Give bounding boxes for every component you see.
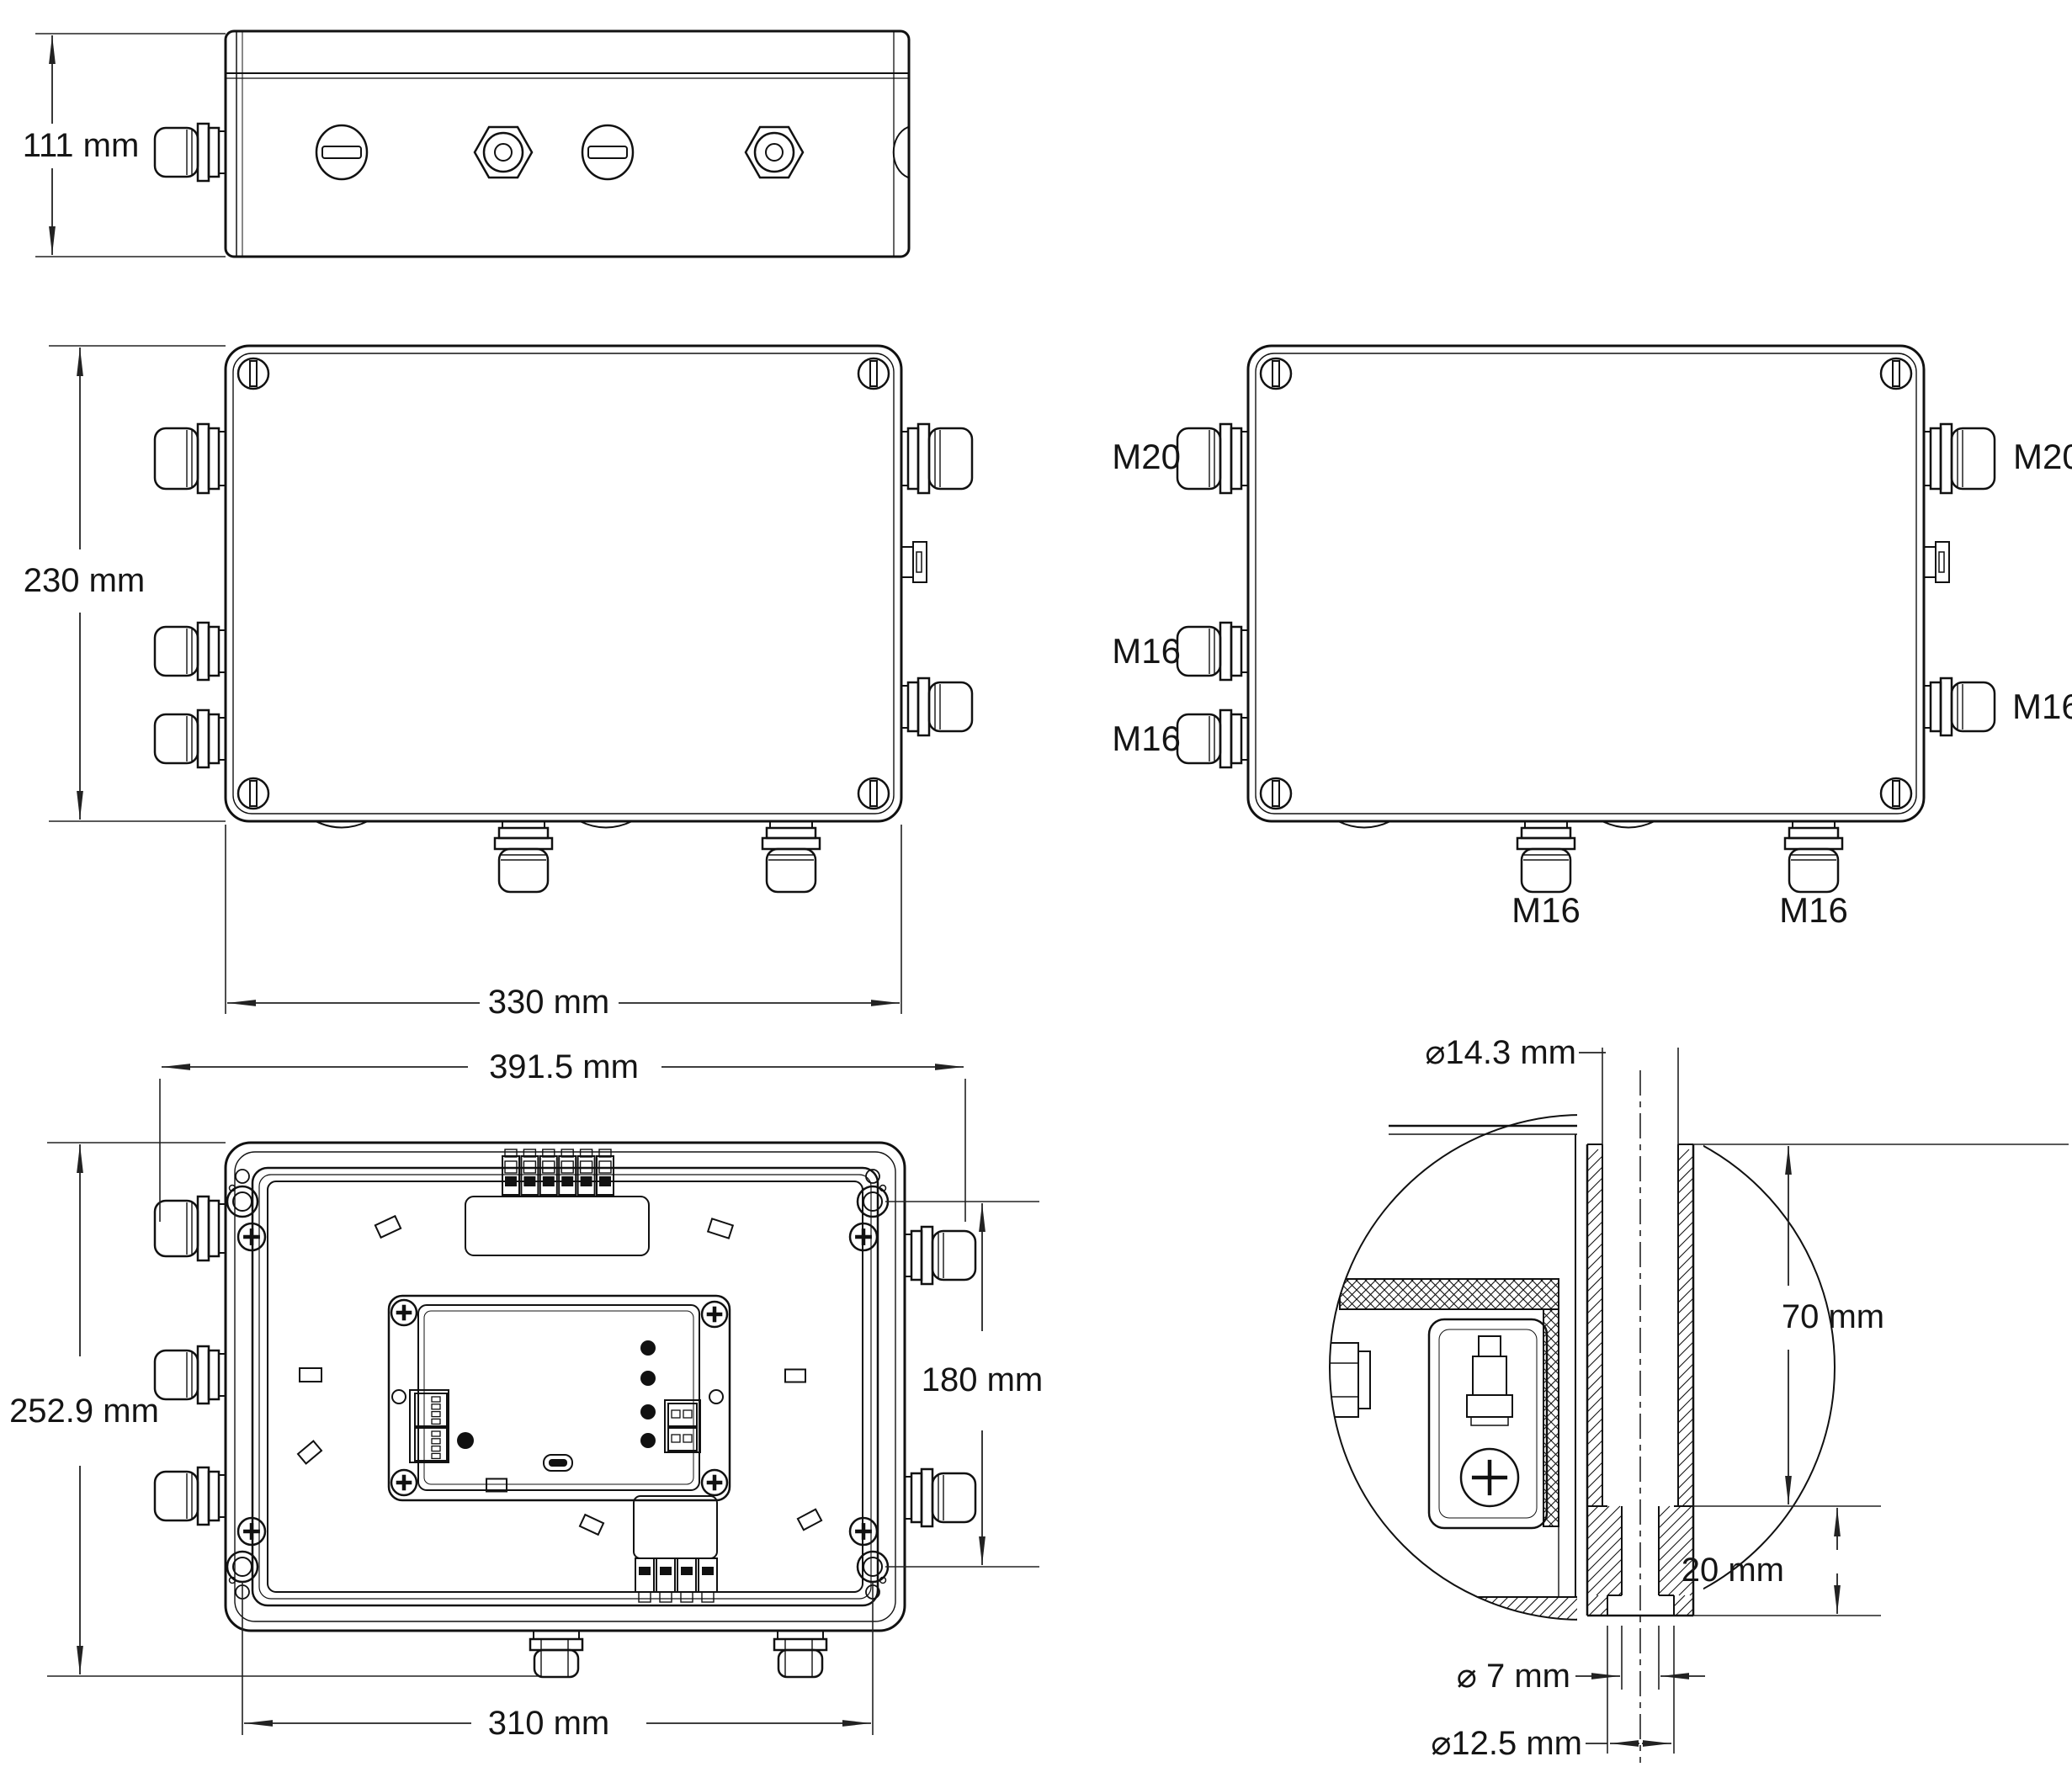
cable-gland-icon [155,424,226,493]
clip-mark [580,1515,603,1535]
oval-screw-cover-icon [316,125,367,179]
label-gland-bottom-left: M16 [1511,890,1581,930]
terminal-block [521,1149,538,1195]
vent-plug-icon [901,542,927,582]
cable-gland-icon [762,821,820,892]
hex-gland-icon [746,127,803,178]
dim-front-width: 330 mm [488,984,610,1021]
terminal-block [677,1558,696,1602]
clip-mark [375,1216,401,1237]
cable-gland-icon [155,1346,226,1404]
oval-screw-cover-icon [582,125,633,179]
terminal-block [635,1558,654,1602]
cable-gland-icon [901,424,972,493]
front-view-gland-labels: M20 M16 M16 M20 M16 M16 M16 [1112,346,2072,930]
dim-mount-width: 310 mm [488,1705,610,1742]
terminal-block [656,1558,675,1602]
dim-boss-depth: 20 mm [1682,1552,1784,1589]
phillips-screw-icon [1461,1449,1518,1506]
dim-sleeve-dia: ⌀14.3 mm [1425,1034,1576,1071]
phillips-screw-icon [391,1470,417,1495]
cable-gland-icon [495,821,552,892]
side-view: 111 mm [23,31,909,257]
label-gland-left-mid: M16 [1112,631,1181,671]
slotted-screw-icon [238,778,268,809]
vent-plug-icon [1924,542,1949,582]
clip-mark [798,1510,821,1531]
dim-open-height: 252.9 mm [9,1393,159,1430]
clip-mark [708,1218,733,1238]
dim-counterbore-dia: ⌀12.5 mm [1431,1725,1582,1762]
phillips-screw-icon [702,1470,727,1495]
terminal-block [597,1149,614,1195]
dim-screw-hole-dia: ⌀ 7 mm [1457,1658,1570,1695]
terminal-block [502,1149,519,1195]
cable-gland-icon [155,1197,226,1260]
clip-mark [300,1368,321,1382]
cable-gland-icon [905,1227,975,1284]
terminal-block [699,1558,717,1602]
dim-front-height: 230 mm [24,562,146,599]
cable-gland-icon [530,1631,582,1677]
sectioned-gland [1330,1343,1370,1417]
slotted-screw-icon [1261,358,1291,389]
dim-side-height: 111 mm [23,127,140,164]
slotted-screw-icon [858,358,889,389]
slotted-screw-icon [1261,778,1291,809]
hex-gland-icon [475,127,532,178]
terminal-block [540,1149,557,1195]
phillips-screw-icon [702,1302,727,1327]
controller-module [389,1296,730,1500]
terminal-block [559,1149,576,1195]
slotted-screw-icon [858,778,889,809]
cable-gland-icon [1177,424,1248,493]
dim-mount-height: 180 mm [922,1361,1044,1398]
cable-gland-icon [1924,678,1995,735]
cable-gland-icon [1177,710,1248,767]
seal-band [1340,1279,1559,1309]
dim-sleeve-depth: 70 mm [1782,1298,1884,1335]
floor-section [1367,1597,1587,1627]
cable-gland-icon [155,124,226,181]
label-gland-right-top: M20 [2013,437,2072,476]
section-detail-view: ⌀14.3 mm 70 mm 20 mm ⌀ 7 mm ⌀12.5 mm [1330,1034,2069,1763]
cable-gland-icon [774,1631,826,1677]
label-gland-right-bottom: M16 [2012,687,2072,726]
phillips-screw-icon [391,1300,417,1325]
cable-gland-icon [1517,821,1575,892]
technical-drawing-page: 111 mm 230 mm 330 mm M20 M16 M16 M20 M16… [0,0,2072,1767]
status-led-icons [640,1340,656,1448]
cable-gland-icon [1785,821,1842,892]
slotted-screw-icon [1881,358,1911,389]
front-view-dimensioned: 230 mm 330 mm [24,346,972,1021]
cable-gland-icon [905,1469,975,1526]
clip-mark [785,1370,805,1382]
label-gland-left-bottom: M16 [1112,719,1181,758]
cable-gland-icon [155,1467,226,1525]
cable-gland-icon [1924,424,1995,493]
terminal-connector-right [665,1400,700,1452]
edge-gland-arc [894,127,908,178]
clip-mark [298,1441,321,1464]
terminal-block [578,1149,595,1195]
open-enclosure-view: 391.5 mm 252.9 mm 180 mm 310 mm [9,1048,1043,1742]
slotted-screw-icon [238,358,268,389]
label-gland-bottom-right: M16 [1779,890,1848,930]
cable-gland-icon [901,678,972,735]
usb-c-port-icon [544,1455,572,1471]
button-icon [457,1432,474,1449]
cable-gland-icon [155,623,226,680]
label-gland-left-top: M20 [1112,437,1181,476]
inner-gland-icon [1467,1336,1512,1425]
dim-open-width: 391.5 mm [489,1048,639,1085]
terminal-connector-left [410,1390,449,1462]
cable-gland-icon [155,710,226,767]
seal-band [1543,1309,1559,1526]
slotted-screw-icon [1881,778,1911,809]
cable-gland-icon [1177,623,1248,680]
